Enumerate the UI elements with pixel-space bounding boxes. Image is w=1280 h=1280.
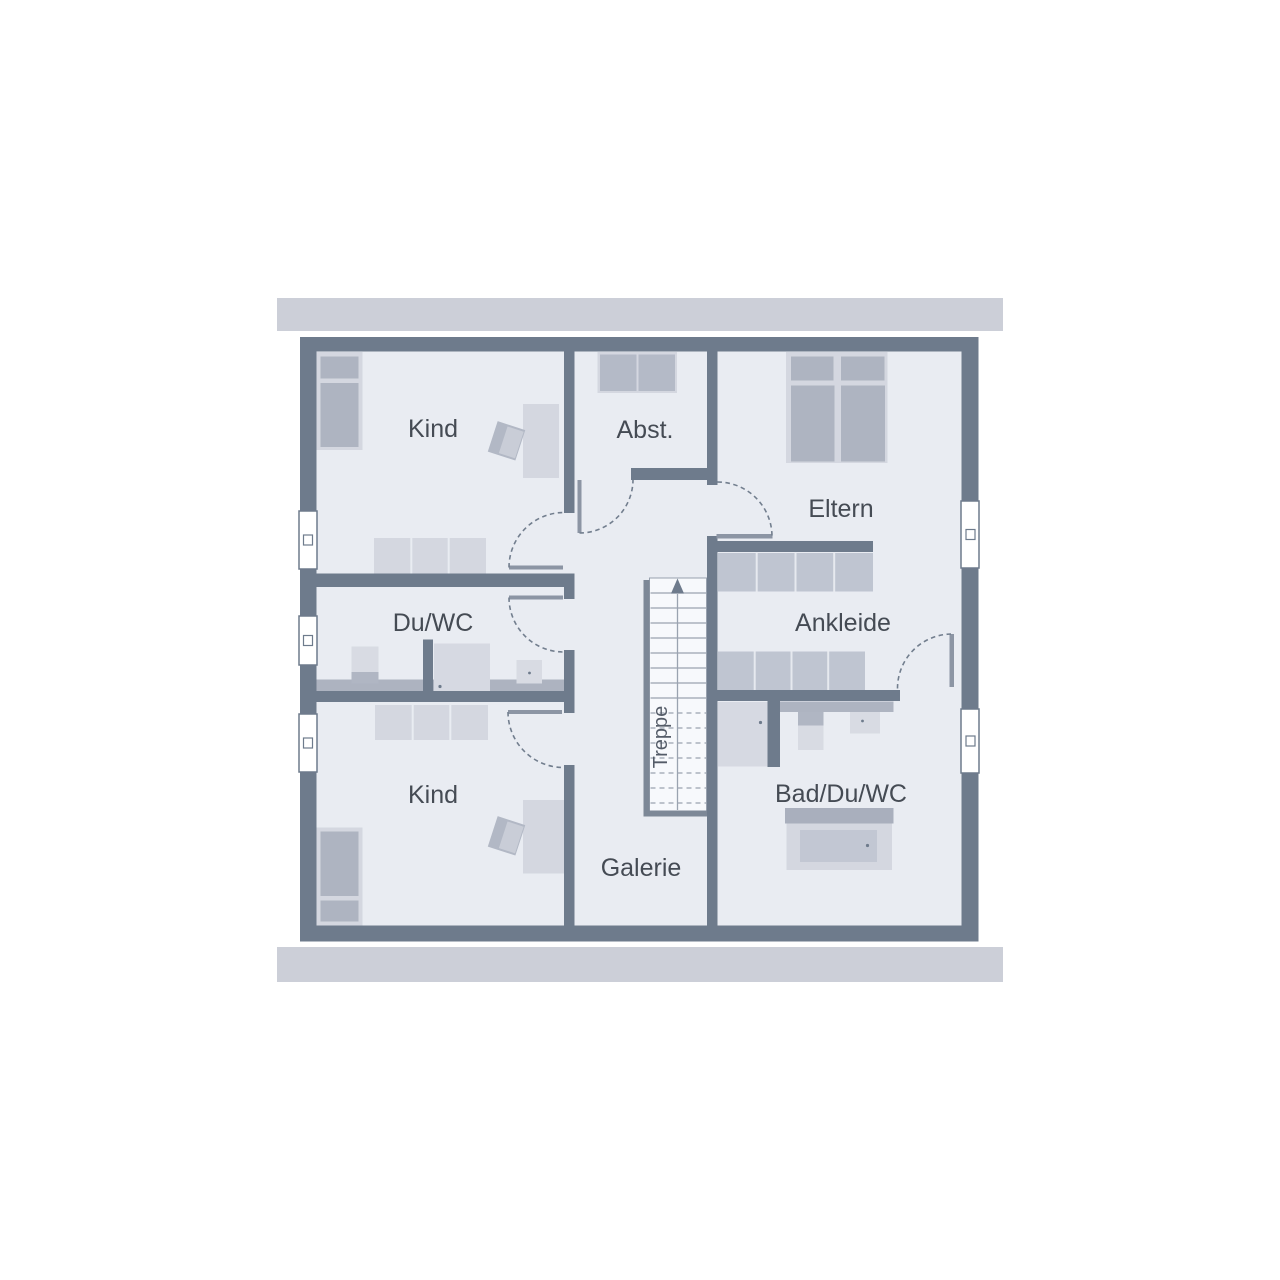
wall-kind-top-abst bbox=[564, 352, 575, 514]
wall-duwc-kind-bottom bbox=[317, 691, 575, 702]
toilet-tank bbox=[798, 712, 824, 726]
door-leaf-kind-bottom bbox=[508, 710, 562, 714]
furniture-abstellraum bbox=[598, 352, 678, 393]
room-label-ankleide: Ankleide bbox=[795, 609, 891, 637]
wall-abst-eltern bbox=[707, 352, 718, 486]
bed-pillow bbox=[321, 901, 359, 922]
wall-ankleide-top bbox=[718, 541, 874, 552]
floor-plan-page: Kind Abst. Eltern Du/WC Ankleide Kind Ba… bbox=[0, 0, 1280, 1280]
bed-mattress bbox=[841, 386, 885, 462]
wall-kind-top-duwc bbox=[317, 574, 570, 588]
door-leaf-du-wc bbox=[509, 596, 563, 600]
window-kind-bottom bbox=[299, 714, 317, 772]
wall-duwc-partition bbox=[423, 640, 433, 703]
stair-railing-bottom bbox=[644, 811, 708, 817]
room-label-bad-du-wc: Bad/Du/WC bbox=[775, 780, 907, 808]
wardrobe-door bbox=[639, 355, 676, 392]
bathtub-deck bbox=[785, 808, 894, 824]
washbasin bbox=[850, 712, 880, 734]
room-label-abstellraum: Abst. bbox=[617, 416, 674, 444]
bed-pillow bbox=[321, 357, 359, 379]
vanity-counter bbox=[780, 702, 894, 713]
wall-bad-partition bbox=[768, 701, 781, 767]
toilet-bowl bbox=[798, 726, 824, 751]
door-leaf-abst bbox=[578, 480, 582, 533]
room-label-du-wc: Du/WC bbox=[393, 609, 474, 637]
washbasin bbox=[352, 647, 379, 673]
window-eltern bbox=[961, 501, 979, 568]
sideboard bbox=[375, 705, 488, 740]
shower-drain bbox=[438, 685, 441, 688]
washbasin-base bbox=[352, 672, 379, 684]
furniture-eltern bbox=[786, 352, 888, 463]
door-leaf-eltern bbox=[717, 534, 773, 539]
bed-mattress bbox=[791, 386, 835, 462]
shower-drain bbox=[759, 721, 762, 724]
roof-eave-bottom bbox=[277, 947, 1003, 982]
toilet-mark bbox=[528, 672, 531, 675]
shower bbox=[718, 702, 768, 767]
wall-duwc-east bbox=[564, 650, 575, 713]
floor-plan-drawing: Kind Abst. Eltern Du/WC Ankleide Kind Ba… bbox=[0, 0, 1280, 1280]
roof-eave-top bbox=[277, 298, 1003, 331]
shower bbox=[434, 644, 490, 695]
sideboard bbox=[374, 538, 486, 574]
wardrobe-door bbox=[600, 355, 637, 392]
staircase bbox=[644, 578, 708, 817]
bathtub bbox=[800, 830, 877, 862]
room-label-treppe: Treppe bbox=[650, 706, 672, 769]
bed-pillow bbox=[791, 357, 834, 381]
wall-corridor-stub bbox=[564, 574, 575, 600]
bed-mattress bbox=[321, 832, 359, 897]
window-kind-top bbox=[299, 511, 317, 569]
wall-kind-bottom-east bbox=[564, 765, 575, 926]
window-du-wc bbox=[299, 616, 317, 665]
washbasin-mark bbox=[861, 720, 864, 723]
room-label-kind-bottom: Kind bbox=[408, 781, 458, 809]
bed-pillow bbox=[841, 357, 885, 381]
door-leaf-kind-top bbox=[509, 566, 563, 570]
window-bad bbox=[961, 709, 979, 773]
wall-abst-bottom bbox=[631, 468, 718, 480]
room-label-kind-top: Kind bbox=[408, 415, 458, 443]
wall-stair-east bbox=[707, 536, 718, 926]
door-leaf-bad bbox=[950, 634, 955, 687]
bathtub-drain bbox=[866, 844, 869, 847]
room-label-galerie: Galerie bbox=[601, 854, 682, 882]
desk bbox=[523, 404, 559, 478]
stair-railing-left bbox=[644, 580, 650, 816]
wall-ankleide-bottom bbox=[718, 690, 901, 701]
room-label-eltern: Eltern bbox=[808, 495, 873, 523]
desk bbox=[523, 800, 565, 874]
bed-mattress bbox=[321, 383, 359, 447]
